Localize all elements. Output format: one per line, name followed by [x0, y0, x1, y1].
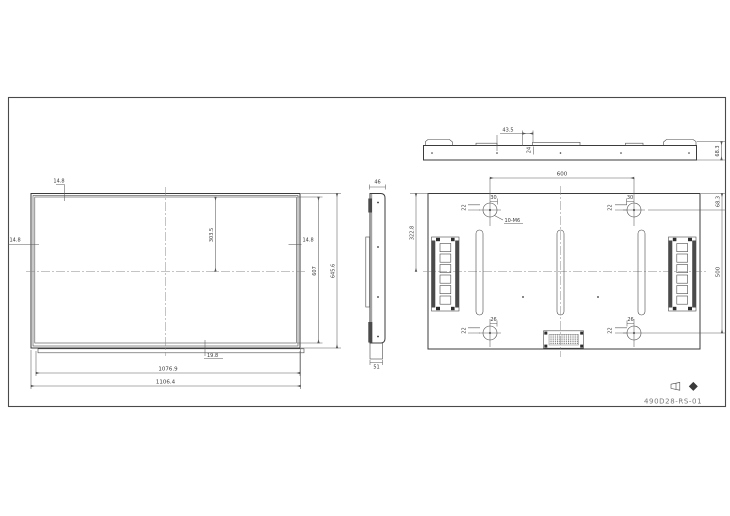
- third-angle-projection-symbol: [671, 382, 698, 391]
- rear-br-hole-side-dim: [615, 328, 627, 333]
- rear-mount-height-label: 500: [716, 266, 722, 277]
- side-bottom-section: [370, 343, 383, 359]
- side-view: 46 51: [366, 180, 386, 371]
- front-left-bezel-label: 14.8: [10, 238, 21, 244]
- drawing-sheet: 14.8 14.8 14.8 303.5 607 645.6 19.8 1076…: [0, 0, 730, 516]
- title-block: 490D28-RS-01: [644, 382, 702, 406]
- front-view: 14.8 14.8 14.8 303.5 607 645.6 19.8 1076…: [9, 179, 342, 390]
- side-body-outline: [370, 194, 385, 344]
- rear-mount-holes: [479, 203, 645, 347]
- front-bottom-bezel-label: 19.8: [207, 353, 218, 359]
- side-bottom-thickness-label: 51: [373, 365, 379, 371]
- top-right-tab: [664, 140, 697, 146]
- rear-tr-hole-offset-label: 30: [627, 195, 633, 201]
- side-bottom-bracket: [368, 322, 372, 343]
- front-bottom-strip: [38, 349, 304, 353]
- rear-tr-hole-side-dim: [615, 205, 627, 210]
- rear-view: 600 68.3 500 322.8 30 22 10-M6 30 22: [410, 172, 727, 358]
- rear-connector-panel-right: [669, 237, 697, 311]
- front-overall-height-label: 645.6: [331, 264, 337, 278]
- front-inner-width-label: 1076.9: [158, 367, 178, 373]
- top-screw-dots: [431, 152, 690, 154]
- rear-tl-hole-side-dim: [468, 205, 480, 210]
- top-handle-offset-label: 43.5: [502, 128, 513, 134]
- top-view: 43.5 24 68.3: [424, 128, 726, 161]
- side-top-thickness-label: 46: [374, 180, 380, 186]
- side-top-bracket: [368, 199, 371, 213]
- projection-target-icon: [689, 382, 698, 391]
- front-top-bezel-dim-lines: [56, 185, 65, 202]
- rear-tl-hole-side-label: 22: [462, 204, 468, 210]
- projection-cone-icon: [671, 382, 680, 390]
- technical-drawing: 14.8 14.8 14.8 303.5 607 645.6 19.8 1076…: [0, 0, 730, 516]
- rear-br-hole-side-label: 22: [608, 327, 614, 333]
- rear-right-dim-ext: [645, 194, 726, 334]
- rear-bl-hole-side-label: 22: [462, 327, 468, 333]
- rear-top-to-center-label: 322.8: [410, 226, 416, 240]
- rear-hole-top-offset-label: 68.3: [716, 196, 722, 207]
- rear-mount-width-label: 600: [557, 172, 568, 178]
- rear-br-hole-offset-label: 26: [627, 317, 633, 323]
- front-top-bezel-label: 14.8: [53, 179, 64, 185]
- rear-tl-hole-offset-label: 30: [490, 195, 496, 201]
- front-right-bezel-label: 14.8: [303, 238, 314, 244]
- top-left-tab: [426, 140, 453, 146]
- rear-hole-spec-label: 10-M6: [505, 218, 521, 224]
- rear-bl-hole-offset-label: 26: [490, 317, 496, 323]
- front-centerlines: [26, 187, 307, 356]
- front-overall-width-label: 1106.4: [156, 380, 176, 386]
- front-half-height-label: 303.5: [209, 228, 215, 242]
- side-mount-rail: [366, 237, 370, 307]
- front-inner-height-label: 607: [312, 266, 318, 276]
- rear-tr-hole-side-label: 22: [608, 204, 614, 210]
- drawing-number: 490D28-RS-01: [644, 398, 702, 406]
- drawing-border: [9, 98, 726, 407]
- rear-connector-panel-left: [432, 237, 460, 311]
- rear-vent-grille: [544, 331, 584, 348]
- rear-bl-hole-side-dim: [468, 328, 480, 333]
- side-screw-dots: [377, 202, 379, 338]
- top-depth-label: 68.3: [715, 145, 721, 156]
- top-handle-depth-label: 24: [527, 147, 533, 153]
